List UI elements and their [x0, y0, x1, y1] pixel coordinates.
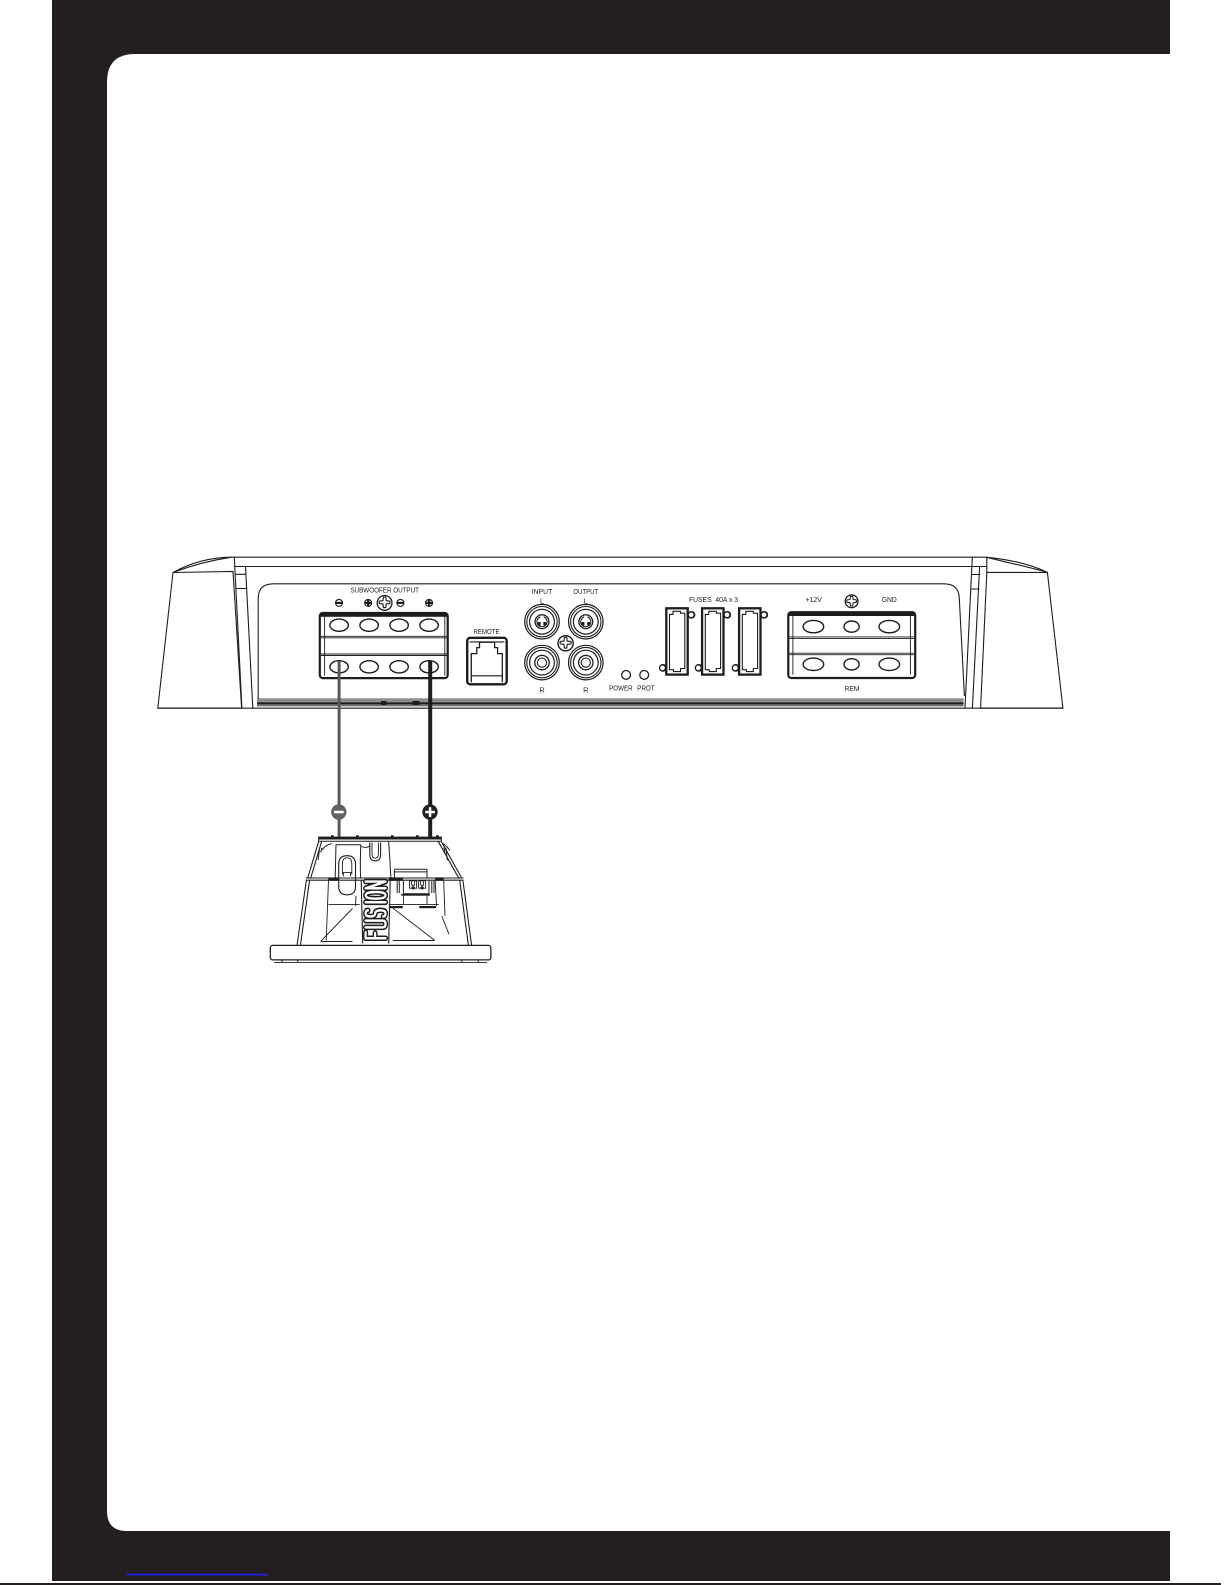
svg-text:REMOTE: REMOTE: [474, 627, 500, 636]
svg-text:POWER: POWER: [609, 686, 633, 693]
svg-text:R: R: [539, 685, 544, 694]
svg-text:SUBWOOFER OUTPUT: SUBWOOFER OUTPUT: [350, 585, 419, 594]
svg-text:OUTPUT: OUTPUT: [573, 587, 598, 596]
svg-text:+12V: +12V: [805, 595, 822, 604]
svg-text:INPUT: INPUT: [532, 587, 553, 596]
svg-text:FUSES 40A x 3: FUSES 40A x 3: [689, 595, 738, 604]
svg-text:L: L: [540, 597, 544, 606]
svg-text:R: R: [583, 685, 588, 694]
svg-text:REM: REM: [845, 684, 860, 693]
svg-text:GND: GND: [882, 595, 897, 604]
svg-text:PROT: PROT: [637, 686, 655, 693]
svg-text:L: L: [584, 597, 588, 606]
